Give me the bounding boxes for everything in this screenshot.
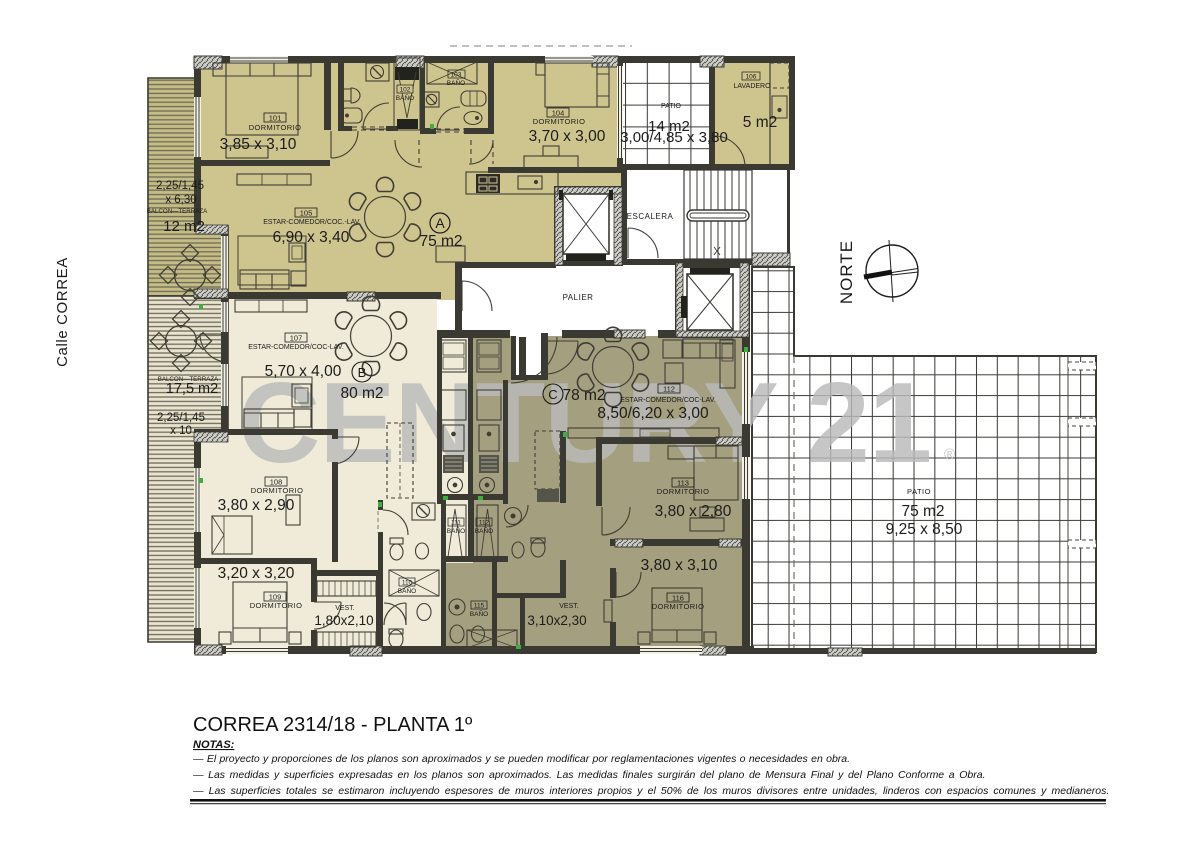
svg-text:PATIO: PATIO: [907, 487, 931, 496]
svg-text:CORREA 2314/18 - PLANTA 1º: CORREA 2314/18 - PLANTA 1º: [193, 714, 473, 736]
svg-text:111: 111: [451, 520, 461, 527]
svg-text:78 m2: 78 m2: [562, 387, 605, 404]
svg-text:112: 112: [479, 520, 490, 527]
svg-text:3,10x2,30: 3,10x2,30: [527, 613, 586, 628]
svg-text:80 m2: 80 m2: [340, 385, 383, 402]
svg-text:75 m2: 75 m2: [901, 503, 944, 520]
svg-text:DORMITORIO: DORMITORIO: [657, 487, 710, 496]
svg-text:— Las medidas y superficies e: — Las medidas y superficies expresadas e…: [192, 769, 986, 781]
svg-text:BAÑO: BAÑO: [398, 586, 416, 595]
svg-text:x 6,30: x 6,30: [165, 194, 196, 206]
svg-text:3,00/4,85 x 3,80: 3,00/4,85 x 3,80: [620, 129, 728, 146]
svg-text:PALIER: PALIER: [563, 293, 594, 302]
svg-text:2,25/1,45: 2,25/1,45: [157, 412, 205, 424]
svg-text:BAÑO: BAÑO: [447, 78, 465, 87]
svg-text:2,25/1,45: 2,25/1,45: [156, 180, 204, 192]
svg-text:B: B: [358, 365, 367, 380]
svg-text:9,25 x 8,50: 9,25 x 8,50: [886, 521, 963, 538]
svg-text:3,20 x 3,20: 3,20 x 3,20: [218, 565, 295, 582]
svg-text:NOTAS:: NOTAS:: [193, 739, 235, 751]
svg-text:CENTURY 21: CENTURY 21: [238, 360, 931, 487]
svg-text:5 m2: 5 m2: [743, 114, 777, 131]
svg-text:105: 105: [300, 209, 313, 218]
svg-text:3,80 x 3,10: 3,80 x 3,10: [641, 557, 718, 574]
svg-text:DORMITORIO: DORMITORIO: [533, 117, 586, 126]
svg-text:PATIO: PATIO: [661, 103, 682, 110]
svg-text:BAÑO: BAÑO: [475, 526, 493, 535]
svg-text:DORMITORIO: DORMITORIO: [250, 601, 303, 610]
svg-text:110: 110: [402, 580, 413, 587]
svg-text:1,80x2,10: 1,80x2,10: [314, 613, 373, 628]
svg-text:Calle CORREA: Calle CORREA: [54, 257, 71, 367]
svg-text:ESTAR-COMEDOR/COC-LAV.: ESTAR-COMEDOR/COC-LAV.: [620, 397, 716, 404]
svg-text:VEST.: VEST.: [335, 605, 355, 612]
svg-text:DORMITORIO: DORMITORIO: [652, 602, 705, 611]
svg-text:107: 107: [290, 334, 303, 343]
svg-text:6,90 x 3,40: 6,90 x 3,40: [273, 229, 350, 246]
svg-text:3,85 x 3,10: 3,85 x 3,10: [220, 136, 297, 153]
svg-text:3,80 x 2,90: 3,80 x 2,90: [218, 497, 295, 514]
svg-text:103: 103: [451, 72, 462, 79]
svg-text:112: 112: [663, 385, 675, 394]
svg-text:VEST.: VEST.: [559, 603, 579, 610]
svg-text:115: 115: [474, 603, 485, 610]
svg-text:®: ®: [944, 446, 955, 463]
svg-text:x 10: x 10: [170, 425, 192, 437]
svg-text:106: 106: [746, 74, 757, 81]
svg-text:A: A: [435, 215, 445, 231]
svg-text:C: C: [548, 387, 557, 402]
svg-text:8,50/6,20 x 3,00: 8,50/6,20 x 3,00: [597, 405, 709, 422]
svg-text:12 m2: 12 m2: [163, 218, 205, 235]
svg-text:ESTAR-COMEDOR/COC-LAV.: ESTAR-COMEDOR/COC-LAV.: [248, 344, 344, 351]
svg-text:BALCON—TERRAZA: BALCON—TERRAZA: [147, 208, 208, 215]
svg-text:BAÑO: BAÑO: [396, 93, 414, 102]
svg-text:102: 102: [400, 87, 411, 94]
svg-text:BAÑO: BAÑO: [470, 609, 488, 618]
svg-text:3,80 x 2,80: 3,80 x 2,80: [655, 503, 732, 520]
svg-text:BAÑO: BAÑO: [447, 526, 465, 535]
svg-text:ESTAR-COMEDOR/COC.-LAV.: ESTAR-COMEDOR/COC.-LAV.: [263, 219, 361, 226]
svg-text:— El proyecto y proporciones: — El proyecto y proporciones de los plan…: [192, 753, 850, 765]
svg-text:— Las superficies totales se: — Las superficies totales se estimaron i…: [192, 785, 1109, 797]
svg-text:101: 101: [269, 114, 282, 123]
svg-text:NORTE: NORTE: [837, 240, 856, 304]
svg-text:75 m2: 75 m2: [419, 233, 462, 250]
svg-text:ESCALERA: ESCALERA: [627, 212, 674, 221]
svg-text:5,70 x 4,00: 5,70 x 4,00: [265, 363, 342, 380]
svg-text:DORMITORIO: DORMITORIO: [249, 123, 302, 132]
svg-text:DORMITORIO: DORMITORIO: [251, 486, 304, 495]
svg-text:LAVADERO: LAVADERO: [733, 83, 771, 90]
svg-text:3,70 x 3,00: 3,70 x 3,00: [529, 128, 606, 145]
svg-text:17,5 m2: 17,5 m2: [166, 381, 218, 397]
